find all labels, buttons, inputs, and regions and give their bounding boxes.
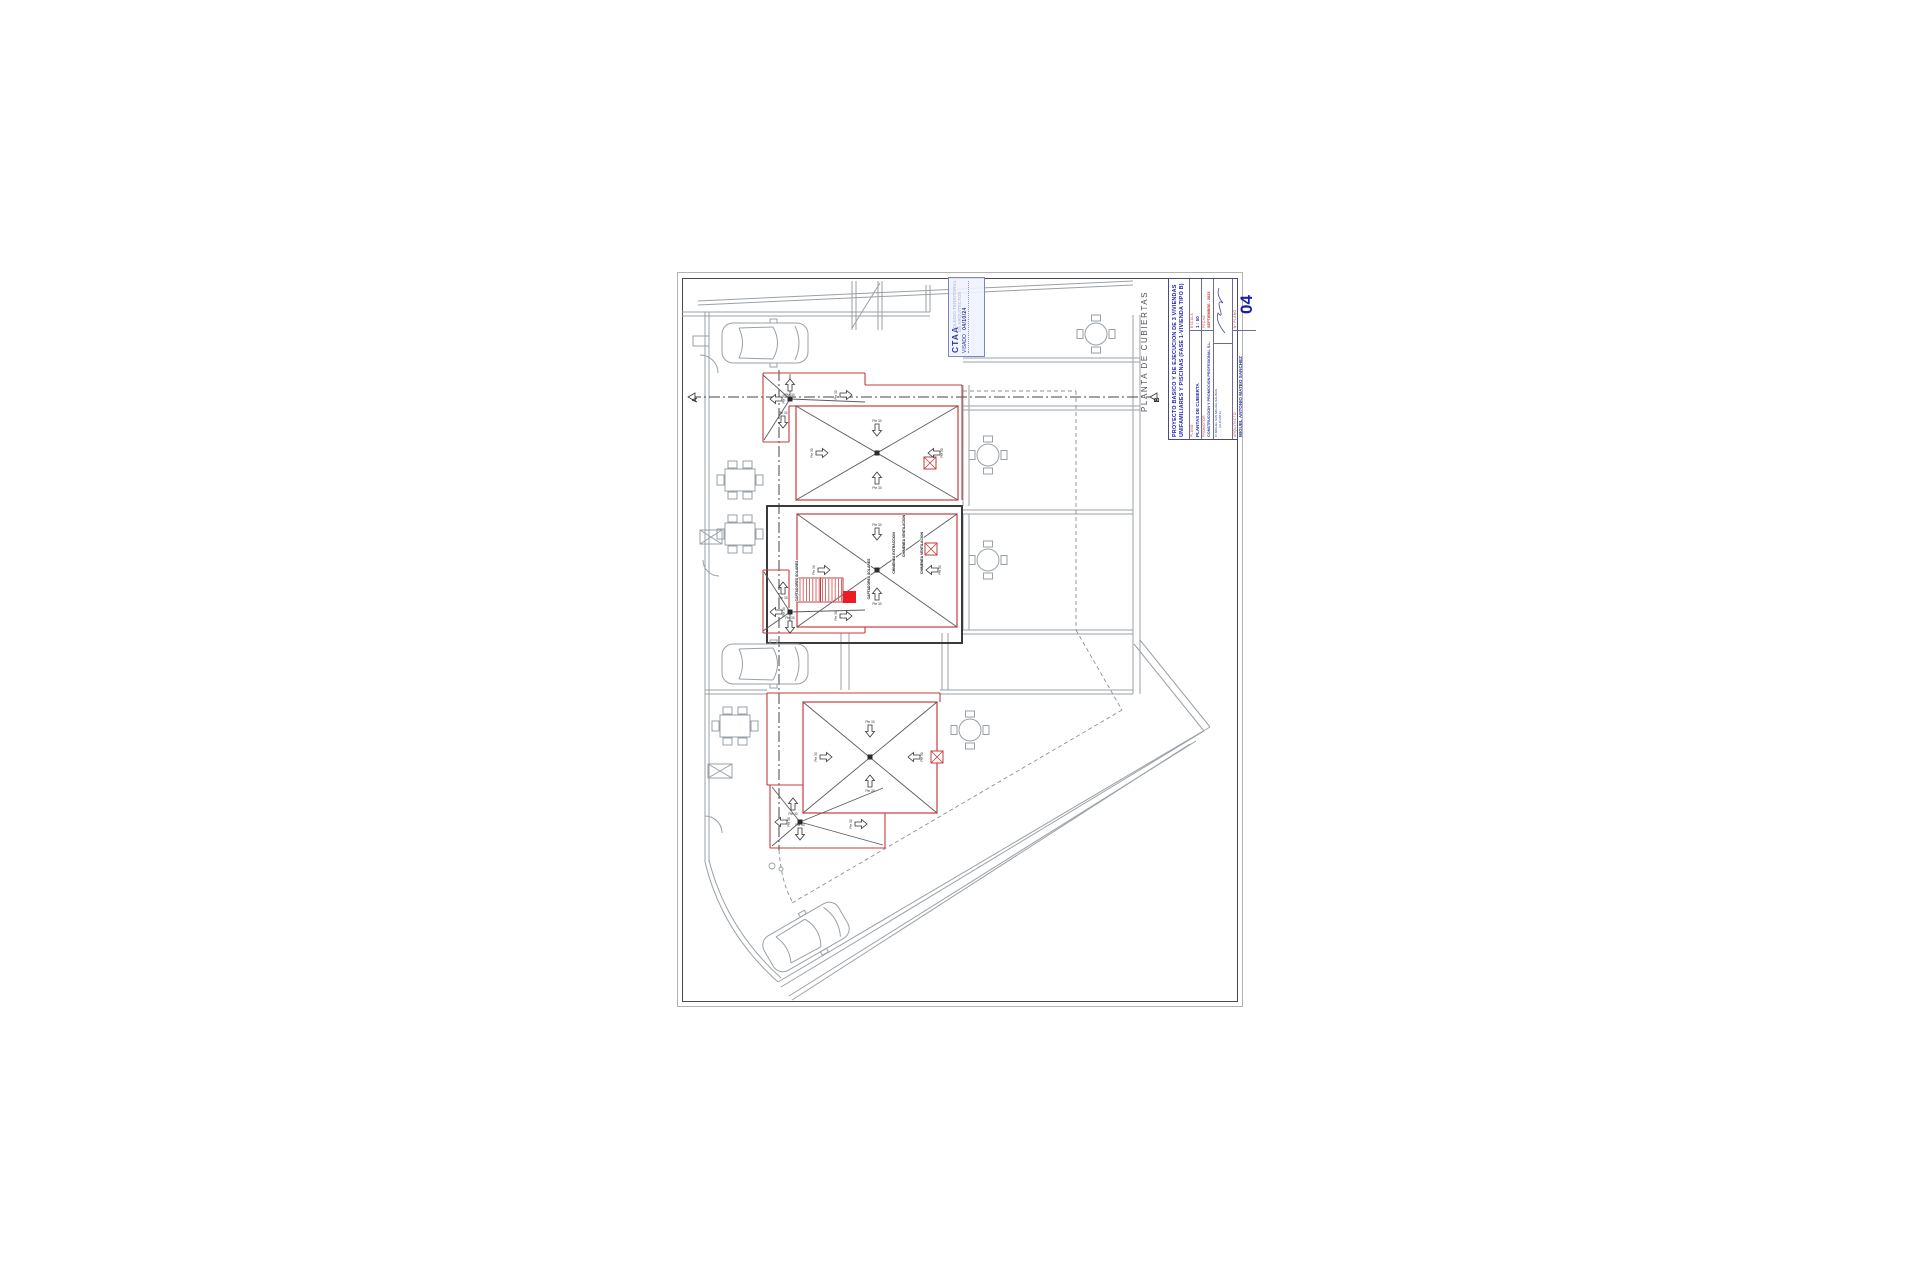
- patio-table-round: [969, 436, 1007, 474]
- slope-arrow: [779, 416, 788, 428]
- roof-annotation-tag: CAPTADORES SOLARES: [795, 560, 799, 602]
- section-marker-b: B: [1154, 397, 1161, 402]
- slope-arrow: [928, 449, 940, 458]
- slope-label: Pte 30: [782, 394, 786, 403]
- red-filled-block: [843, 591, 856, 603]
- ridge-point: [875, 451, 880, 456]
- slope-arrow: [818, 566, 830, 575]
- slope-label: Pte 30: [812, 565, 816, 574]
- slope-label: Pte 30: [785, 616, 794, 620]
- slope-arrow: [866, 775, 875, 787]
- car: [722, 319, 808, 367]
- slope-arrow: [770, 608, 782, 617]
- patio-table-rect: [717, 515, 763, 553]
- college-visa-stamp: COLEGIO TERRITORIAL DE ARQUITECTOS CTAA …: [948, 277, 985, 357]
- site-wall: [778, 727, 1210, 982]
- ridge-point: [788, 610, 793, 615]
- entry-canopy: [693, 336, 709, 346]
- patio-table-rect: [712, 707, 758, 745]
- slope-arrow: [840, 612, 852, 621]
- slope-label: Pte 30: [872, 486, 881, 490]
- slope-arrow: [873, 528, 882, 540]
- roof-hip-line: [790, 610, 865, 612]
- roof-hip-line: [764, 399, 790, 440]
- slope-label: Pte 30: [849, 819, 853, 828]
- slope-label: Pte 30: [834, 390, 838, 399]
- slope-label: Pte 30: [865, 789, 874, 793]
- field-address: C/ MIGUEL SAN MIGUEL SALINAS · · · · · (…: [1214, 344, 1232, 439]
- field-promotor: PROMOTOR CONSTRUCCION Y PROMOCION PROFES…: [1202, 331, 1213, 439]
- field-arquitecto: ARQUITECTO MIGUEL ANTONIO MATEO SANCHEZ …: [1233, 331, 1256, 439]
- slope-arrow: [855, 820, 867, 829]
- slope-label: Pte 30: [865, 720, 874, 724]
- roof-annotation-tag: CHIMENEA EXTRACCION: [892, 532, 896, 574]
- site-wall: [781, 731, 1204, 987]
- ridge-point: [868, 755, 873, 760]
- slope-arrow: [770, 395, 782, 404]
- roof-plan-drawing: Pte 30Pte 30Pte 30Pte 30Pte 30Pte 30Pte …: [0, 0, 1920, 1280]
- site-wall: [698, 281, 1133, 301]
- slope-arrow: [786, 379, 795, 391]
- slope-label: Pte 30: [940, 448, 944, 457]
- signature: [1214, 279, 1227, 343]
- slope-label: Pte 30: [795, 823, 804, 827]
- roof-hip-line: [790, 399, 865, 402]
- patio-table-round: [969, 541, 1007, 579]
- sheet-number: 04: [1238, 281, 1255, 328]
- slope-arrow: [866, 725, 875, 737]
- setback-line: [779, 850, 793, 903]
- site-wall: [698, 285, 1133, 305]
- roof-annotation-tag: CAPTADORES SOLARES: [867, 558, 871, 600]
- slope-arrow: [786, 621, 795, 633]
- slope-label: Pte 30: [788, 812, 797, 816]
- slope-arrow: [840, 391, 852, 400]
- slope-label: Pte 30: [785, 393, 794, 397]
- slope-arrow: [908, 753, 920, 762]
- patio-table-round: [1077, 315, 1115, 353]
- roof-annotation-tag: CHIMENEA VENTILACION: [902, 515, 906, 557]
- site-curve: [705, 816, 722, 833]
- slope-label: Pte 30: [814, 752, 818, 761]
- slope-label: Pte 30: [787, 817, 791, 826]
- site-wall: [1140, 640, 1210, 727]
- roof-hip-line: [800, 822, 883, 845]
- slope-label: Pte 30: [938, 565, 942, 574]
- slope-label: Pte 30: [810, 448, 814, 457]
- stamp-watermark: COLEGIO TERRITORIAL DE ARQUITECTOS: [952, 280, 962, 332]
- slope-label: Pte 30: [872, 602, 881, 606]
- slope-label: Pte 30: [872, 523, 881, 527]
- field-escala: ESCALA 1 : 50: [1190, 279, 1201, 331]
- slope-arrow: [926, 566, 938, 575]
- site-wall: [792, 744, 1190, 1000]
- sheet-number-box: Nº PLANO 04: [1233, 279, 1256, 331]
- stamp-fine-print: · · · · · · · · · · · · · · · · · · · ·: [971, 281, 975, 353]
- field-plano: PLANO PLANTAS DE CUBIERTA: [1190, 331, 1201, 439]
- slope-arrow: [796, 828, 805, 840]
- gate-symbol: [769, 863, 775, 869]
- project-title: PROYECTO BASICO Y DE EJECUCION DE 3 VIVI…: [1169, 279, 1189, 439]
- car: [757, 895, 855, 980]
- roof-hip-line: [772, 787, 800, 822]
- slope-label: Pte 30: [920, 752, 924, 761]
- patio-table-round: [951, 711, 989, 749]
- roof-annotation-tag: CHIMENEA VENTILACION: [920, 532, 924, 574]
- ridge-point: [875, 568, 880, 573]
- title-block: PROYECTO BASICO Y DE EJECUCION DE 3 VIVI…: [1168, 278, 1238, 440]
- slope-arrow: [816, 449, 828, 458]
- slope-arrow: [820, 753, 832, 762]
- slope-arrow: [779, 582, 788, 594]
- section-marker-a: A: [692, 397, 699, 402]
- stamp-visa-row: VISADO 04/10/24: [962, 281, 969, 353]
- setback-line: [1076, 630, 1122, 710]
- field-fecha: FECHA SEPTIEMBRE - 2023: [1202, 279, 1213, 331]
- setback-line: [792, 710, 1122, 903]
- patio-table-rect: [717, 461, 763, 499]
- slope-arrow: [789, 798, 798, 810]
- slope-label: Pte 30: [778, 596, 787, 600]
- slope-label: Pte 30: [834, 611, 838, 620]
- slope-label: Pte 30: [778, 411, 787, 415]
- site-wall: [1134, 644, 1204, 731]
- slope-arrow: [873, 472, 882, 484]
- plan-title-vertical: PLANTA DE CUBIERTAS: [1140, 298, 1152, 412]
- slope-arrow: [873, 588, 882, 600]
- ridge-point: [788, 397, 793, 402]
- car: [722, 640, 808, 688]
- slope-arrow: [873, 424, 882, 436]
- signature-box: [1214, 279, 1232, 344]
- drawing-canvas: Pte 30Pte 30Pte 30Pte 30Pte 30Pte 30Pte …: [0, 0, 1920, 1280]
- slope-arrow: [775, 818, 787, 827]
- slope-label: Pte 30: [872, 419, 881, 423]
